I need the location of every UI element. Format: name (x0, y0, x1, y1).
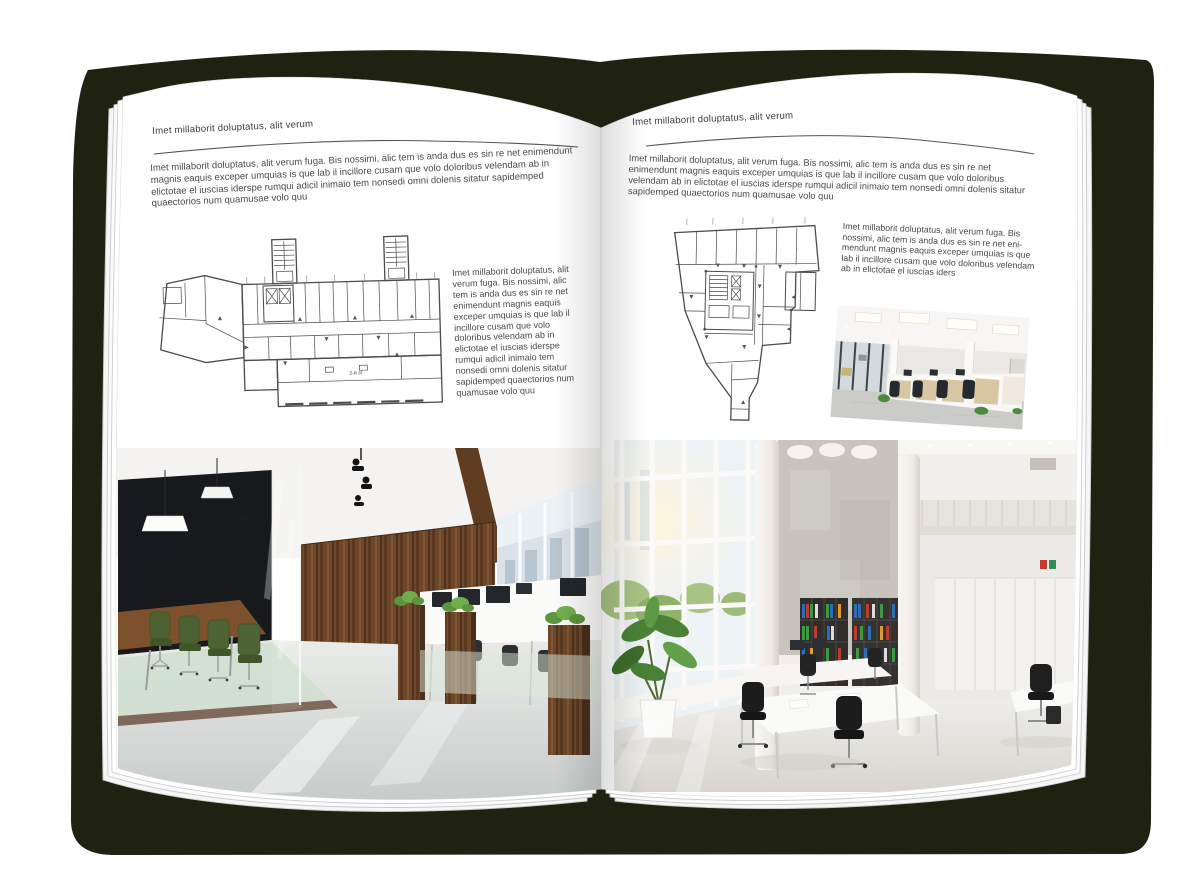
photo-right-small-office (831, 305, 1030, 429)
photo-right-atrium (575, 435, 1080, 792)
glass-media-wall (832, 341, 889, 394)
open-magazine-mockup: 2-й эт (0, 0, 1200, 891)
floorplan-floor-label: 2-й эт (349, 369, 363, 376)
right-page-side-text: Imet millaborit doluptatus, alit verum f… (841, 221, 1039, 282)
left-page-side-text: Imet millaborit doluptatus, alit verum f… (452, 264, 582, 399)
photo-left-office (116, 448, 602, 800)
